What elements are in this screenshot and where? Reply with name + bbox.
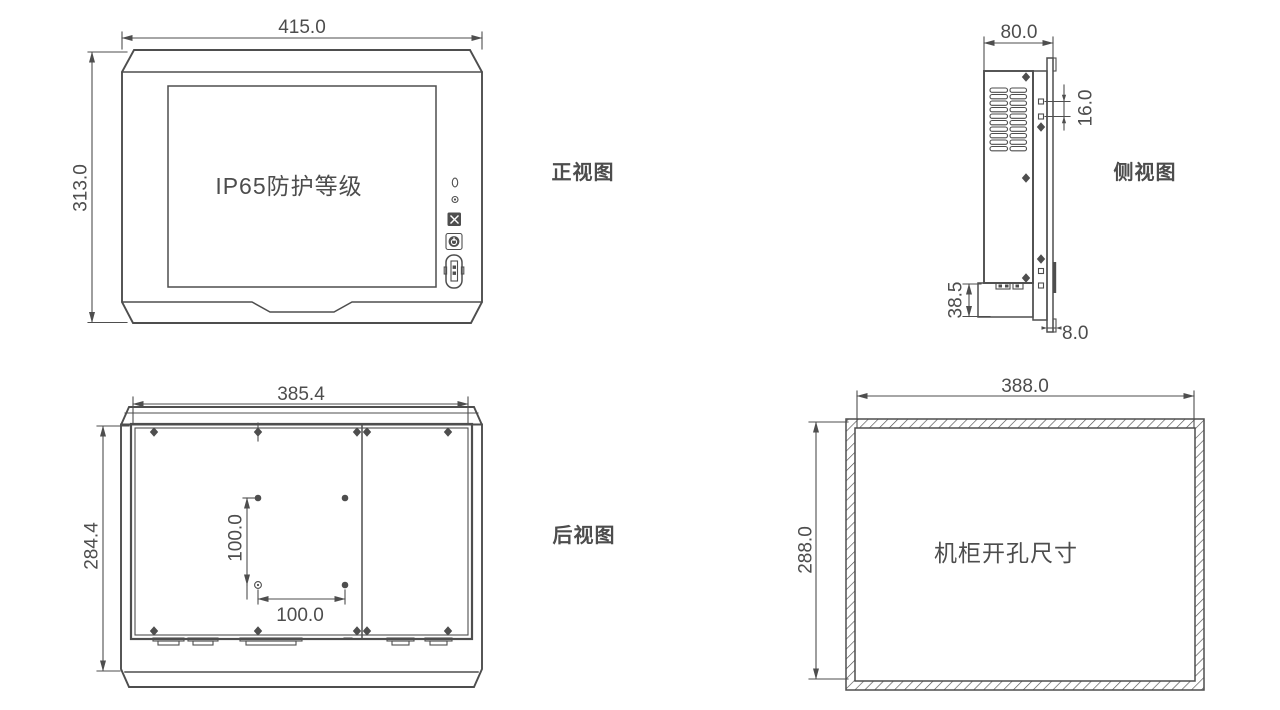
power-button-icon (446, 234, 462, 250)
side-bezel-bottom-flange (1053, 319, 1056, 332)
vesa-holes (255, 495, 349, 589)
side-bottom-box (978, 283, 1033, 317)
side-bezel-depth-dimension: 8.0 (1042, 323, 1089, 344)
rear-view-label: 后视图 (553, 524, 616, 547)
side-bottom-height-dimension: 38.5 (946, 282, 991, 319)
svg-text:385.4: 385.4 (277, 384, 325, 405)
vent-grille (990, 88, 1027, 151)
rear-view: 100.0 100.0 385.4 (82, 384, 616, 687)
svg-text:388.0: 388.0 (1001, 376, 1049, 397)
svg-text:80.0: 80.0 (1001, 22, 1038, 43)
svg-text:100.0: 100.0 (276, 605, 324, 626)
svg-text:16.0: 16.0 (1076, 90, 1097, 127)
svg-text:100.0: 100.0 (226, 514, 247, 562)
side-view-label: 侧视图 (1114, 160, 1177, 184)
side-depth-dimension: 80.0 (984, 22, 1053, 70)
svg-text:38.5: 38.5 (946, 282, 967, 319)
front-view-label: 正视图 (552, 161, 615, 184)
technical-drawing: IP65防护等级 (0, 0, 1280, 710)
svg-text:284.4: 284.4 (82, 522, 103, 570)
svg-text:415.0: 415.0 (278, 17, 326, 38)
vesa-vertical-dimension: 100.0 (226, 498, 257, 599)
drawing-svg: IP65防护等级 (0, 0, 1280, 710)
cutout-label: 机柜开孔尺寸 (934, 540, 1078, 566)
front-width-dimension: 415.0 (122, 17, 482, 49)
cutout-height-dimension: 288.0 (796, 422, 849, 679)
ip-rating-label: IP65防护等级 (215, 173, 362, 199)
svg-text:8.0: 8.0 (1062, 323, 1088, 344)
front-view: IP65防护等级 (71, 17, 615, 323)
x-button-icon (448, 213, 462, 227)
side-bezel-top-flange (1053, 58, 1056, 71)
front-bottom-seam (122, 302, 482, 312)
led-indicator-icon (452, 178, 458, 202)
usb-port-icon (444, 255, 464, 288)
rear-width-dimension: 385.4 (133, 384, 468, 423)
svg-text:288.0: 288.0 (796, 526, 817, 574)
side-front-bezel (1047, 58, 1053, 332)
front-height-dimension: 313.0 (71, 52, 128, 323)
rear-plate-inner (135, 428, 468, 635)
cutout-view: 机柜开孔尺寸 388.0 288.0 (796, 376, 1205, 690)
vesa-horizontal-dimension: 100.0 (258, 590, 345, 626)
side-usb-cover (1053, 262, 1056, 293)
side-view: 80.0 16.0 38.5 8.0 侧视图 (946, 22, 1177, 344)
svg-text:313.0: 313.0 (71, 164, 92, 212)
